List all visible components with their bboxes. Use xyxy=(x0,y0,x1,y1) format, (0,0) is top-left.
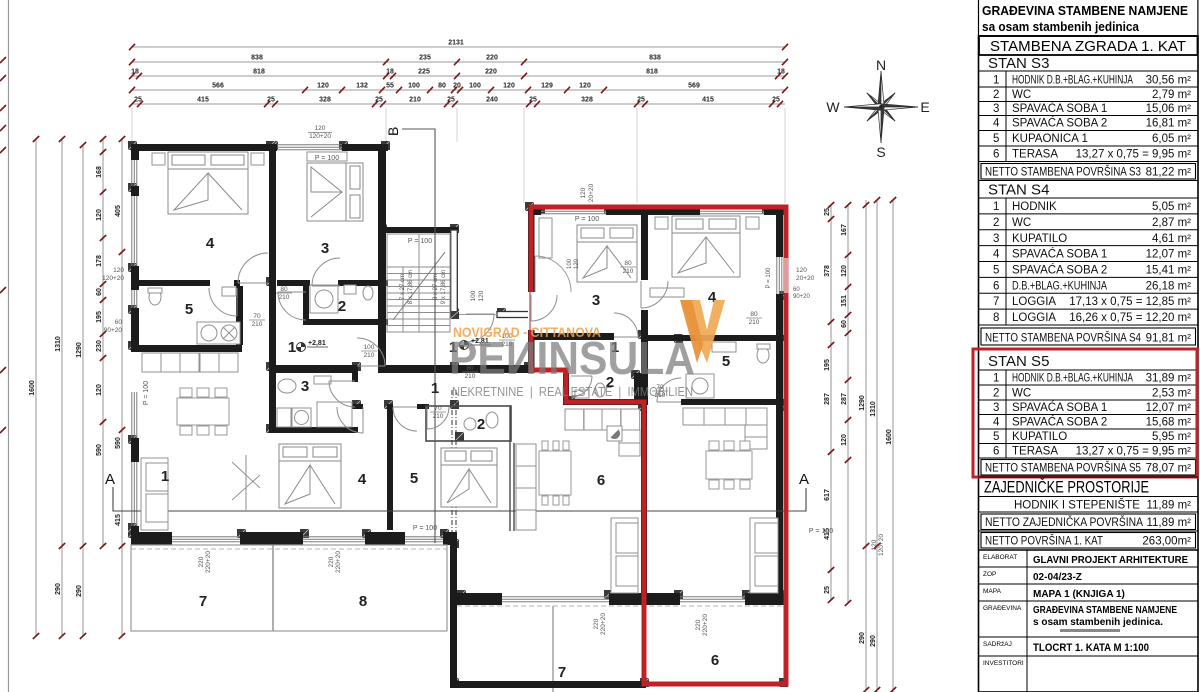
svg-text:838: 838 xyxy=(649,55,661,62)
svg-text:120: 120 xyxy=(96,384,103,396)
svg-text:3: 3 xyxy=(592,292,600,309)
svg-text:6,05 m²: 6,05 m² xyxy=(1152,133,1191,145)
svg-text:290: 290 xyxy=(76,585,83,597)
svg-text:SADRžAJ: SADRžAJ xyxy=(983,641,1012,648)
svg-text:P = 100: P = 100 xyxy=(143,381,150,405)
svg-text:ZAJEDNIČKE PROSTORIJE: ZAJEDNIČKE PROSTORIJE xyxy=(984,478,1149,497)
svg-text:18: 18 xyxy=(777,69,785,76)
svg-text:3: 3 xyxy=(993,233,999,245)
svg-text:PEИINSULA: PEИINSULA xyxy=(449,332,695,384)
svg-text:D.B.+BLAG.+KUHINJA: D.B.+BLAG.+KUHINJA xyxy=(1012,281,1107,293)
svg-text:NETTO ZAJEDNIČKA POVRŠINA: NETTO ZAJEDNIČKA POVRŠINA xyxy=(985,516,1143,529)
svg-text:HODNIK I STEPENIŠTE: HODNIK I STEPENIŠTE xyxy=(1014,499,1140,512)
svg-text:17,13 x 0,75 = 12,85 m²: 17,13 x 0,75 = 12,85 m² xyxy=(1069,296,1191,308)
svg-text:4: 4 xyxy=(993,118,1000,130)
svg-text:287: 287 xyxy=(841,393,848,405)
svg-text:838: 838 xyxy=(251,55,263,62)
svg-text:1600: 1600 xyxy=(29,380,36,396)
svg-text:129: 129 xyxy=(541,83,553,90)
svg-text:25: 25 xyxy=(134,97,142,104)
svg-text:1310: 1310 xyxy=(55,336,62,352)
svg-text:LOGGIA: LOGGIA xyxy=(1012,296,1056,308)
svg-text:S: S xyxy=(876,144,885,160)
svg-text:220: 220 xyxy=(593,618,600,629)
svg-text:12,07 m²: 12,07 m² xyxy=(1146,402,1192,414)
svg-text:405: 405 xyxy=(115,205,122,217)
svg-text:A: A xyxy=(105,471,115,488)
svg-text:290: 290 xyxy=(870,635,877,647)
svg-text:220+20: 220+20 xyxy=(205,551,212,573)
svg-text:78,07 m²: 78,07 m² xyxy=(1146,463,1192,475)
svg-text:KUPATILO: KUPATILO xyxy=(1012,233,1067,245)
svg-text:TERASA: TERASA xyxy=(1012,446,1058,458)
svg-text:5: 5 xyxy=(993,133,999,145)
svg-text:566: 566 xyxy=(212,83,224,90)
svg-text:KUPATILO: KUPATILO xyxy=(1012,431,1067,443)
svg-text:8: 8 xyxy=(359,593,367,610)
svg-text:SPAVAĆA SOBA 2: SPAVAĆA SOBA 2 xyxy=(1012,264,1107,277)
svg-text:7: 7 xyxy=(558,664,566,681)
svg-text:30,56 m²: 30,56 m² xyxy=(1146,75,1192,87)
svg-text:16,81 m²: 16,81 m² xyxy=(1146,118,1192,130)
svg-text:B: B xyxy=(385,127,401,136)
svg-text:8: 8 xyxy=(993,312,999,324)
svg-text:60: 60 xyxy=(96,288,103,296)
svg-text:P = 100: P = 100 xyxy=(413,525,437,532)
svg-text:220: 220 xyxy=(486,55,498,62)
svg-text:SPAVAĆA SOBA 1: SPAVAĆA SOBA 1 xyxy=(1012,102,1107,115)
svg-text:4: 4 xyxy=(358,471,367,488)
svg-text:220: 220 xyxy=(198,556,205,567)
svg-text:195: 195 xyxy=(824,359,831,371)
svg-text:100: 100 xyxy=(469,83,481,90)
svg-text:1: 1 xyxy=(161,468,169,485)
svg-text:STAN S5: STAN S5 xyxy=(988,353,1049,370)
svg-text:120: 120 xyxy=(841,265,848,277)
svg-text:25: 25 xyxy=(824,586,831,594)
svg-text:HODNIK: HODNIK xyxy=(1012,201,1057,213)
svg-text:8 x 17,86 cm: 8 x 17,86 cm xyxy=(408,270,414,304)
svg-text:TERASA: TERASA xyxy=(1012,149,1058,161)
svg-text:290: 290 xyxy=(55,583,62,595)
svg-text:16,26 x 0,75 = 12,20 m²: 16,26 x 0,75 = 12,20 m² xyxy=(1069,312,1191,324)
svg-text:NETTO STAMBENA POVRŠINA S4: NETTO STAMBENA POVRŠINA S4 xyxy=(985,332,1142,345)
svg-text:220+20: 220+20 xyxy=(702,614,709,636)
svg-text:230: 230 xyxy=(96,340,103,352)
svg-text:13,27 x 0,75 = 9,95 m²: 13,27 x 0,75 = 9,95 m² xyxy=(1076,446,1192,458)
svg-text:5,05 m²: 5,05 m² xyxy=(1152,201,1191,213)
svg-text:NEKRETNINE | REAL ESTATE |: NEKRETNINE | REAL ESTATE | IMMOBILIEN xyxy=(452,385,693,399)
svg-text:31,89 m²: 31,89 m² xyxy=(1146,373,1192,385)
svg-text:P = 100: P = 100 xyxy=(809,528,833,535)
svg-text:18: 18 xyxy=(131,69,139,76)
svg-text:328: 328 xyxy=(581,97,593,104)
svg-text:168: 168 xyxy=(96,166,103,178)
svg-text:120+20: 120+20 xyxy=(878,534,885,556)
svg-text:2131: 2131 xyxy=(448,40,464,47)
svg-text:25: 25 xyxy=(637,97,645,104)
svg-text:6: 6 xyxy=(993,149,999,161)
svg-text:GRAĐEVINA: GRAĐEVINA xyxy=(983,605,1022,612)
svg-text:s osam stambenih jedinica.: s osam stambenih jedinica. xyxy=(1033,617,1163,628)
svg-text:7: 7 xyxy=(199,593,207,610)
svg-text:25: 25 xyxy=(772,97,780,104)
svg-text:90+20: 90+20 xyxy=(104,327,123,334)
svg-text:P = 100: P = 100 xyxy=(575,216,599,223)
svg-text:120+20: 120+20 xyxy=(309,133,331,140)
svg-text:4: 4 xyxy=(993,417,1000,429)
svg-text:P = 100: P = 100 xyxy=(315,155,339,162)
svg-text:2: 2 xyxy=(993,217,999,229)
svg-text:235: 235 xyxy=(419,55,431,62)
svg-text:151: 151 xyxy=(841,295,848,307)
svg-text:+2,81: +2,81 xyxy=(308,340,326,347)
svg-text:1: 1 xyxy=(993,373,999,385)
svg-text:210: 210 xyxy=(364,352,375,359)
svg-text:120: 120 xyxy=(574,258,580,269)
svg-text:91,81 m²: 91,81 m² xyxy=(1146,333,1192,345)
svg-text:15,41 m²: 15,41 m² xyxy=(1146,265,1192,277)
svg-text:120: 120 xyxy=(579,83,591,90)
svg-text:818: 818 xyxy=(646,69,658,76)
svg-text:590: 590 xyxy=(115,437,122,449)
svg-text:120: 120 xyxy=(315,125,326,132)
svg-text:25: 25 xyxy=(447,97,455,104)
svg-text:WC: WC xyxy=(1012,217,1031,229)
svg-text:1: 1 xyxy=(993,201,999,213)
svg-text:55: 55 xyxy=(386,83,394,90)
svg-text:120: 120 xyxy=(841,434,848,446)
svg-text:6: 6 xyxy=(993,281,999,293)
svg-text:210: 210 xyxy=(409,97,421,104)
svg-text:225: 225 xyxy=(418,69,430,76)
svg-text:13,27 x 0,75 = 9,95 m²: 13,27 x 0,75 = 9,95 m² xyxy=(1076,149,1192,161)
svg-text:210: 210 xyxy=(433,413,444,420)
svg-text:NETTO STAMBENA POVRŠINA S3: NETTO STAMBENA POVRŠINA S3 xyxy=(985,166,1141,179)
svg-text:12,07 m²: 12,07 m² xyxy=(1146,249,1192,261)
svg-text:4,61 m²: 4,61 m² xyxy=(1152,233,1191,245)
svg-text:210: 210 xyxy=(252,321,263,328)
svg-text:02-04/23-Z: 02-04/23-Z xyxy=(1033,572,1082,583)
svg-text:20: 20 xyxy=(453,83,461,90)
svg-text:220: 220 xyxy=(695,619,702,630)
svg-text:NETTO STAMBENA POVRŠINA S5: NETTO STAMBENA POVRŠINA S5 xyxy=(985,462,1141,475)
svg-text:MAPA: MAPA xyxy=(983,588,1002,595)
svg-text:9 x 17,86 cm: 9 x 17,86 cm xyxy=(441,270,447,304)
svg-text:2,53 m²: 2,53 m² xyxy=(1152,388,1191,400)
svg-text:590: 590 xyxy=(96,444,103,456)
svg-text:80: 80 xyxy=(438,83,446,90)
svg-text:6: 6 xyxy=(993,446,999,458)
svg-text:328: 328 xyxy=(319,97,331,104)
svg-text:3: 3 xyxy=(301,378,309,395)
svg-text:2: 2 xyxy=(338,298,346,315)
svg-text:120: 120 xyxy=(478,290,485,301)
svg-text:818: 818 xyxy=(253,69,265,76)
svg-text:60: 60 xyxy=(841,320,848,328)
svg-text:90+20: 90+20 xyxy=(793,294,811,300)
svg-text:MAPA 1 (KNJIGA 1): MAPA 1 (KNJIGA 1) xyxy=(1033,589,1125,600)
svg-text:569: 569 xyxy=(688,83,700,90)
svg-text:P = 100: P = 100 xyxy=(766,267,772,288)
svg-text:HODNIK D.B.+BLAG.+KUHINJA: HODNIK D.B.+BLAG.+KUHINJA xyxy=(1012,373,1133,385)
svg-text:4: 4 xyxy=(993,249,1000,261)
svg-text:11,89 m²: 11,89 m² xyxy=(1146,517,1191,529)
svg-text:120: 120 xyxy=(503,83,515,90)
svg-text:5: 5 xyxy=(185,301,193,318)
svg-text:120: 120 xyxy=(113,267,124,274)
svg-text:HODNIK D.B.+BLAG.+KUHINJA: HODNIK D.B.+BLAG.+KUHINJA xyxy=(1012,75,1133,87)
svg-text:415: 415 xyxy=(115,514,122,526)
svg-text:25: 25 xyxy=(529,97,537,104)
svg-text:263,00m²: 263,00m² xyxy=(1142,536,1191,548)
svg-text:18: 18 xyxy=(386,69,394,76)
svg-text:100: 100 xyxy=(408,83,420,90)
svg-text:80: 80 xyxy=(624,260,632,267)
svg-text:INVESTITORI: INVESTITORI xyxy=(983,660,1024,667)
svg-text:1290: 1290 xyxy=(859,395,866,411)
svg-text:378: 378 xyxy=(824,265,831,277)
svg-text:3: 3 xyxy=(321,240,329,257)
svg-text:E: E xyxy=(920,99,929,115)
svg-text:60: 60 xyxy=(793,287,800,293)
svg-text:220+20: 220+20 xyxy=(335,551,342,573)
svg-text:6: 6 xyxy=(711,652,719,669)
svg-text:ZOP: ZOP xyxy=(983,571,996,578)
svg-text:220+20: 220+20 xyxy=(600,613,607,635)
svg-text:2,87 m²: 2,87 m² xyxy=(1152,217,1191,229)
svg-text:5: 5 xyxy=(993,431,999,443)
svg-text:sa osam stambenih jedinica: sa osam stambenih jedinica xyxy=(982,20,1140,34)
svg-text:70: 70 xyxy=(253,313,261,320)
svg-text:2: 2 xyxy=(477,416,485,433)
svg-text:220: 220 xyxy=(485,69,497,76)
svg-text:20+20: 20+20 xyxy=(796,275,815,282)
svg-text:70: 70 xyxy=(434,405,442,412)
svg-text:100: 100 xyxy=(567,258,573,269)
svg-text:15,06 m²: 15,06 m² xyxy=(1146,103,1192,115)
svg-text:240: 240 xyxy=(486,97,498,104)
svg-text:STAN S3: STAN S3 xyxy=(988,55,1049,72)
svg-text:A: A xyxy=(799,471,809,488)
svg-text:290: 290 xyxy=(859,632,866,644)
svg-text:SPAVAĆA SOBA 1: SPAVAĆA SOBA 1 xyxy=(1012,401,1107,414)
svg-text:210: 210 xyxy=(749,319,760,326)
svg-text:GRAĐEVINA STAMBENE NAMJENE: GRAĐEVINA STAMBENE NAMJENE xyxy=(1033,605,1177,616)
svg-text:120: 120 xyxy=(96,209,103,221)
svg-text:5: 5 xyxy=(722,353,730,370)
svg-text:2,79 m²: 2,79 m² xyxy=(1152,89,1191,101)
svg-text:617: 617 xyxy=(824,489,831,501)
svg-text:WC: WC xyxy=(1012,388,1031,400)
svg-text:120: 120 xyxy=(317,83,329,90)
svg-text:415: 415 xyxy=(702,97,714,104)
svg-text:120: 120 xyxy=(871,539,878,550)
svg-text:5: 5 xyxy=(993,265,999,277)
svg-text:5,95 m²: 5,95 m² xyxy=(1152,431,1191,443)
svg-text:W: W xyxy=(826,99,840,115)
svg-text:25: 25 xyxy=(375,97,383,104)
svg-text:60: 60 xyxy=(115,319,123,326)
svg-text:STAMBENA ZGRADA 1. KAT: STAMBENA ZGRADA 1. KAT xyxy=(990,39,1186,55)
svg-text:25: 25 xyxy=(267,97,275,104)
svg-text:220: 220 xyxy=(328,556,335,567)
svg-text:120: 120 xyxy=(580,187,587,198)
svg-text:STAN S4: STAN S4 xyxy=(988,182,1049,199)
svg-text:SPAVAĆA SOBA 2: SPAVAĆA SOBA 2 xyxy=(1012,416,1107,429)
svg-text:4: 4 xyxy=(206,235,215,252)
svg-text:20+20: 20+20 xyxy=(588,183,595,202)
svg-text:1: 1 xyxy=(288,339,296,356)
svg-text:15,68 m²: 15,68 m² xyxy=(1146,417,1192,429)
svg-text:195: 195 xyxy=(96,311,103,323)
svg-text:ELABORAT: ELABORAT xyxy=(983,554,1017,561)
svg-text:1600: 1600 xyxy=(886,429,893,445)
svg-text:1290: 1290 xyxy=(76,342,83,358)
svg-text:1: 1 xyxy=(431,380,439,397)
svg-text:TLOCRT 1. KATA M 1:100: TLOCRT 1. KATA M 1:100 xyxy=(1033,642,1149,654)
svg-text:LOGGIA: LOGGIA xyxy=(1012,312,1056,324)
svg-text:SPAVAĆA SOBA 1: SPAVAĆA SOBA 1 xyxy=(1012,248,1107,261)
svg-text:7 x 27 cm: 7 x 27 cm xyxy=(400,274,406,300)
svg-text:120+20: 120+20 xyxy=(102,275,124,282)
svg-text:5: 5 xyxy=(410,470,418,487)
svg-text:P = 100: P = 100 xyxy=(408,238,432,245)
svg-text:81,22 m²: 81,22 m² xyxy=(1146,167,1192,179)
svg-text:167: 167 xyxy=(841,224,848,236)
svg-text:2: 2 xyxy=(993,89,999,101)
svg-text:100: 100 xyxy=(470,290,477,301)
svg-text:KUPAONICA 1: KUPAONICA 1 xyxy=(1012,133,1088,145)
svg-text:132: 132 xyxy=(356,83,368,90)
svg-text:25: 25 xyxy=(824,208,831,216)
svg-text:26,18 m²: 26,18 m² xyxy=(1146,281,1192,293)
svg-text:GRAĐEVINA STAMBENE NAMJENE: GRAĐEVINA STAMBENE NAMJENE xyxy=(982,3,1188,18)
svg-text:3: 3 xyxy=(993,402,999,414)
svg-text:210: 210 xyxy=(623,268,634,275)
svg-text:210: 210 xyxy=(279,294,290,301)
svg-text:6: 6 xyxy=(597,472,605,489)
svg-text:2: 2 xyxy=(993,388,999,400)
svg-text:WC: WC xyxy=(1012,89,1031,101)
svg-text:178: 178 xyxy=(96,255,103,267)
svg-text:GLAVNI PROJEKT ARHITEKTURE: GLAVNI PROJEKT ARHITEKTURE xyxy=(1033,554,1188,566)
svg-text:80: 80 xyxy=(280,286,288,293)
svg-text:8 x 27 cm: 8 x 27 cm xyxy=(433,274,439,300)
svg-text:1310: 1310 xyxy=(870,401,877,417)
svg-text:287: 287 xyxy=(824,393,831,405)
svg-text:NETTO POVRŠINA 1. KAT: NETTO POVRŠINA 1. KAT xyxy=(985,535,1103,548)
svg-text:SPAVAĆA SOBA 2: SPAVAĆA SOBA 2 xyxy=(1012,117,1107,130)
svg-text:415: 415 xyxy=(197,97,209,104)
svg-text:N: N xyxy=(876,57,886,73)
svg-text:80: 80 xyxy=(750,311,758,318)
svg-text:7: 7 xyxy=(993,296,999,308)
svg-text:3: 3 xyxy=(993,103,999,115)
svg-text:100: 100 xyxy=(364,344,375,351)
svg-text:120: 120 xyxy=(796,267,807,274)
svg-text:11,89 m²: 11,89 m² xyxy=(1146,500,1191,512)
svg-text:1: 1 xyxy=(993,75,999,87)
